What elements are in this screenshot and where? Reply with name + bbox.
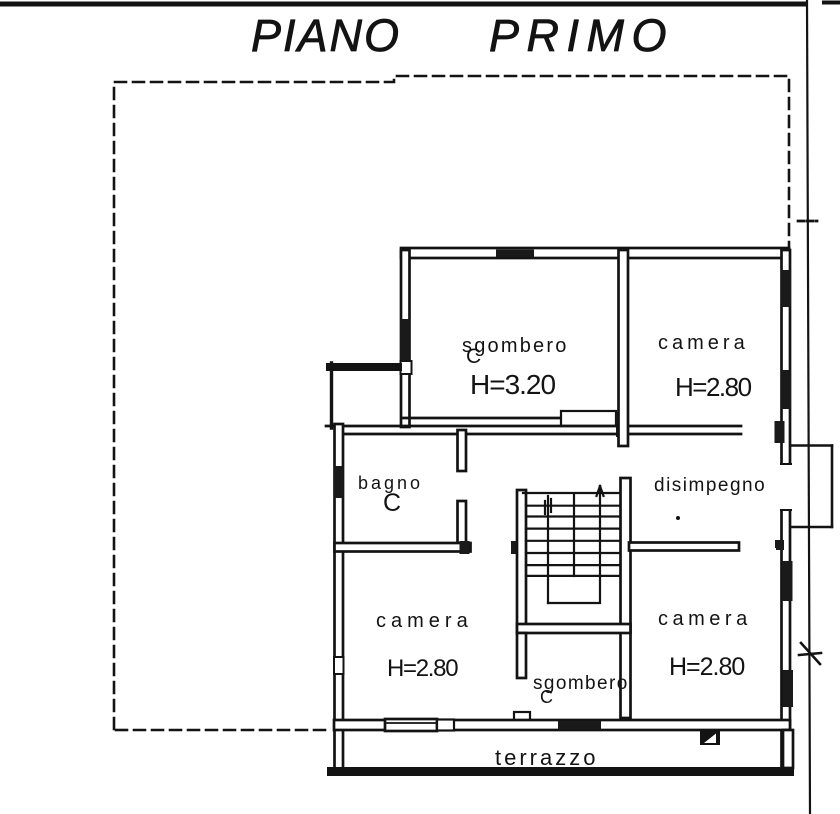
svg-text:terrazzo: terrazzo	[495, 745, 598, 770]
svg-text:C: C	[383, 489, 401, 517]
svg-text:camera: camera	[658, 332, 749, 354]
svg-text:C: C	[540, 687, 553, 707]
svg-text:PIANO: PIANO	[251, 10, 401, 61]
svg-text:C: C	[466, 345, 481, 368]
svg-text:H=2.80: H=2.80	[387, 655, 458, 682]
svg-text:H=3.20: H=3.20	[470, 369, 555, 400]
svg-text:H=2.80: H=2.80	[669, 653, 744, 681]
svg-text:camera: camera	[658, 608, 752, 630]
svg-text:disimpegno: disimpegno	[654, 475, 766, 496]
svg-text:PRIMO: PRIMO	[489, 10, 674, 61]
svg-text:H=2.80: H=2.80	[675, 372, 752, 402]
svg-text:camera: camera	[376, 610, 473, 632]
